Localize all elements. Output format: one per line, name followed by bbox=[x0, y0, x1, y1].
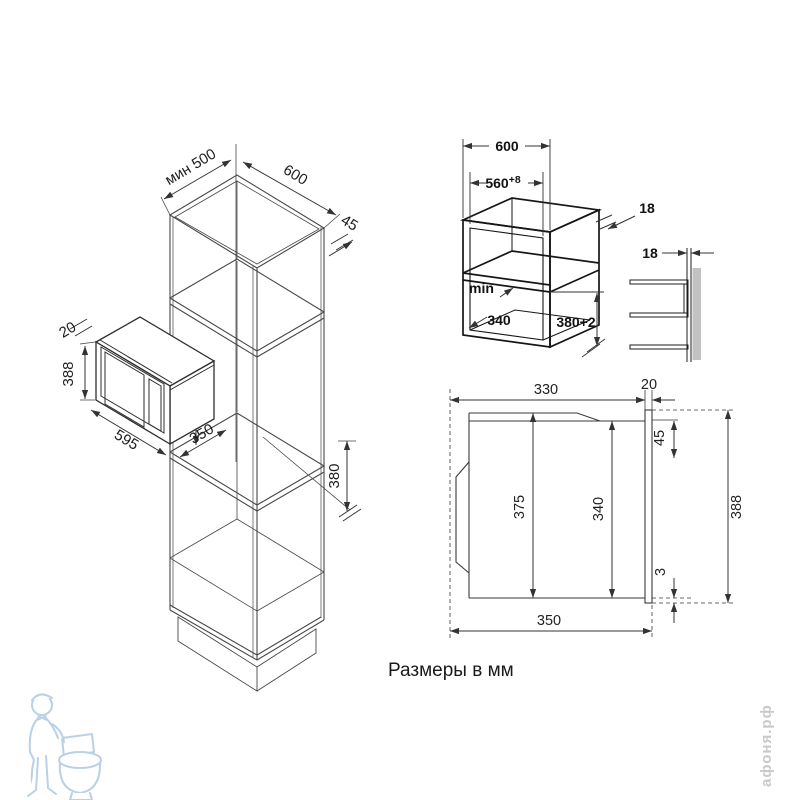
installation-drawing-page: мин 500 600 45 20 515 388 375 595 350 38… bbox=[0, 0, 800, 800]
cabinet-shelf-upper bbox=[170, 259, 324, 357]
dim-line-45 bbox=[329, 242, 352, 256]
section-door-extensions bbox=[645, 390, 678, 420]
niche-label-min: min bbox=[469, 280, 494, 296]
niche-arrow-min bbox=[500, 288, 513, 297]
niche-label-18-side: 18 bbox=[639, 200, 655, 216]
section-label-340: 340 bbox=[591, 497, 607, 521]
plumber-watermark bbox=[28, 694, 101, 800]
profile-shelf-mid bbox=[630, 313, 688, 317]
section-label-20: 20 bbox=[641, 377, 657, 393]
site-watermark: афоня.рф bbox=[758, 686, 798, 800]
dim-label-20: 20 bbox=[56, 319, 79, 342]
profile-shelf-bottom bbox=[630, 345, 688, 349]
wall-profile-view: 18 bbox=[630, 245, 714, 362]
section-door-panel bbox=[645, 410, 652, 603]
section-body-bump bbox=[456, 462, 469, 573]
dim-label-388: 388 bbox=[60, 361, 77, 386]
section-label-350: 350 bbox=[537, 613, 561, 629]
profile-label-18: 18 bbox=[642, 245, 658, 261]
section-label-45: 45 bbox=[652, 430, 668, 446]
section-side-view: 330 20 45 375 340 3 388 350 bbox=[450, 377, 745, 641]
wall-panel bbox=[693, 268, 702, 360]
niche-top-face bbox=[463, 198, 599, 232]
cabinet-bottom-edges bbox=[170, 605, 324, 660]
section-label-388: 388 bbox=[729, 495, 745, 519]
dim-label-380-iso: 380 bbox=[326, 463, 343, 488]
niche-label-380-2: 380+2 bbox=[556, 314, 596, 330]
toilet-seat bbox=[59, 752, 101, 768]
profile-shelf-top bbox=[630, 280, 688, 284]
section-body-outline bbox=[469, 413, 645, 598]
dim-label-600: 600 bbox=[280, 161, 310, 188]
microwave-unit bbox=[96, 317, 214, 444]
cabinet-top-face bbox=[170, 175, 324, 268]
niche-isometric-view: 600 560+8 18 min 340 380+2 bbox=[463, 138, 655, 357]
dim-label-min500: мин 500 bbox=[162, 145, 219, 189]
toilet-base bbox=[70, 793, 92, 800]
niche-label-560: 560+8 bbox=[485, 174, 520, 191]
niche-label-340: 340 bbox=[487, 312, 511, 328]
section-label-3: 3 bbox=[653, 568, 669, 576]
section-label-330: 330 bbox=[534, 382, 558, 398]
niche-label-600: 600 bbox=[495, 138, 519, 154]
dim-label-45: 45 bbox=[338, 212, 361, 235]
dim-label-595: 595 bbox=[111, 426, 141, 453]
niche-leader-18 bbox=[608, 216, 635, 229]
dim-hatch-380 bbox=[339, 505, 361, 521]
units-caption: Размеры в мм bbox=[388, 660, 514, 682]
section-label-375: 375 bbox=[512, 495, 528, 519]
